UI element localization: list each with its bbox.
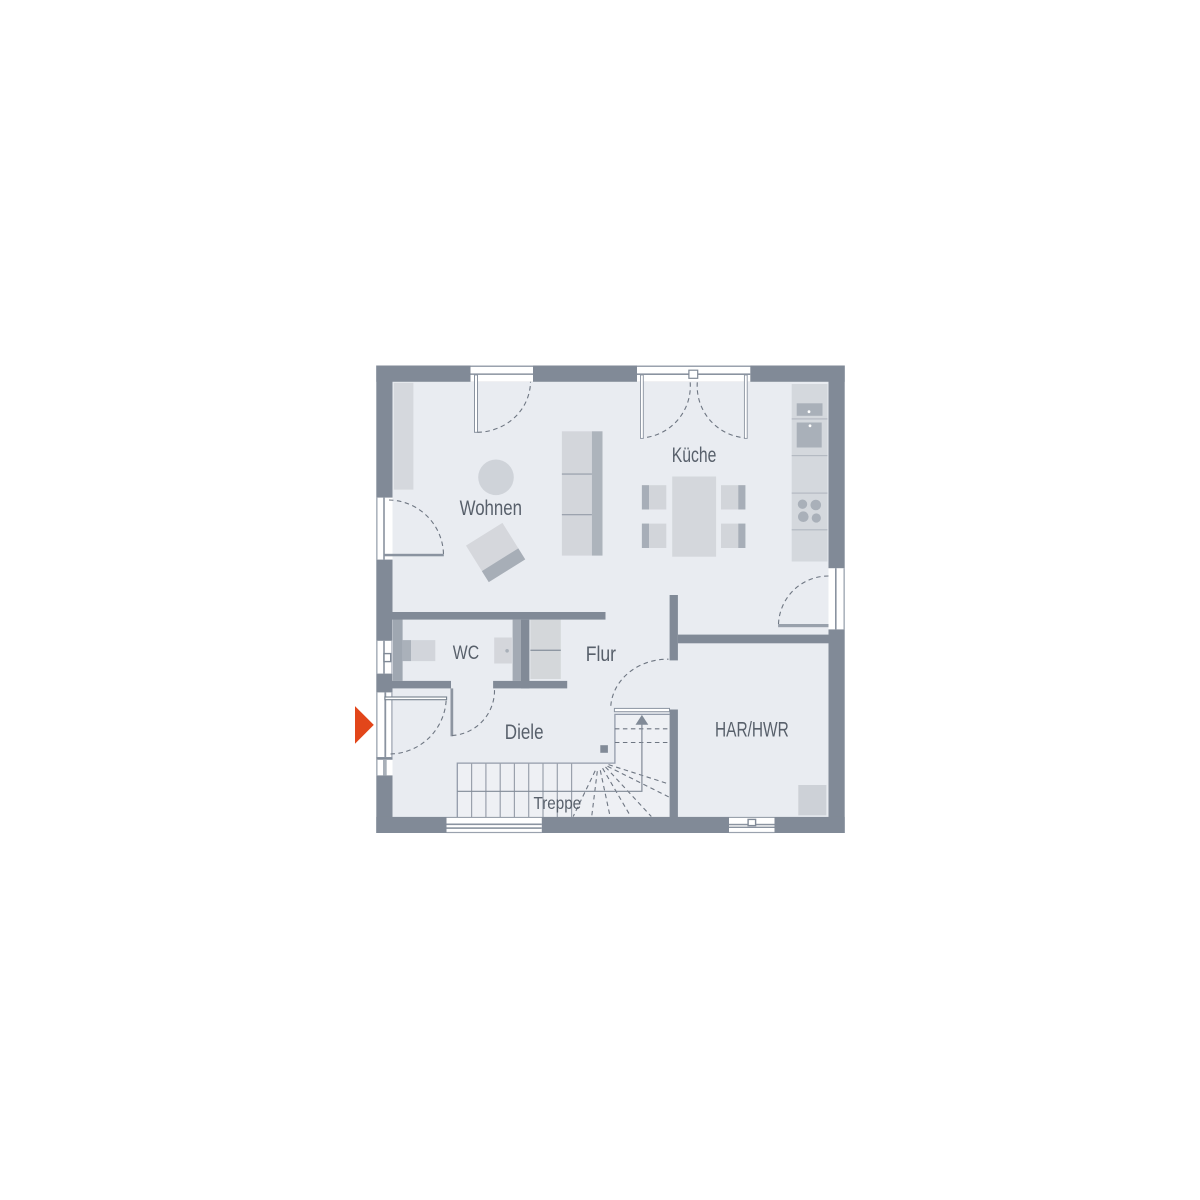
svg-text:WC: WC (453, 641, 479, 663)
svg-text:Küche: Küche (672, 443, 717, 467)
svg-text:Treppe: Treppe (534, 794, 582, 813)
svg-text:Diele: Diele (505, 721, 544, 744)
svg-text:Wohnen: Wohnen (460, 497, 522, 520)
svg-text:Flur: Flur (586, 643, 617, 667)
svg-text:HAR/HWR: HAR/HWR (715, 717, 789, 741)
